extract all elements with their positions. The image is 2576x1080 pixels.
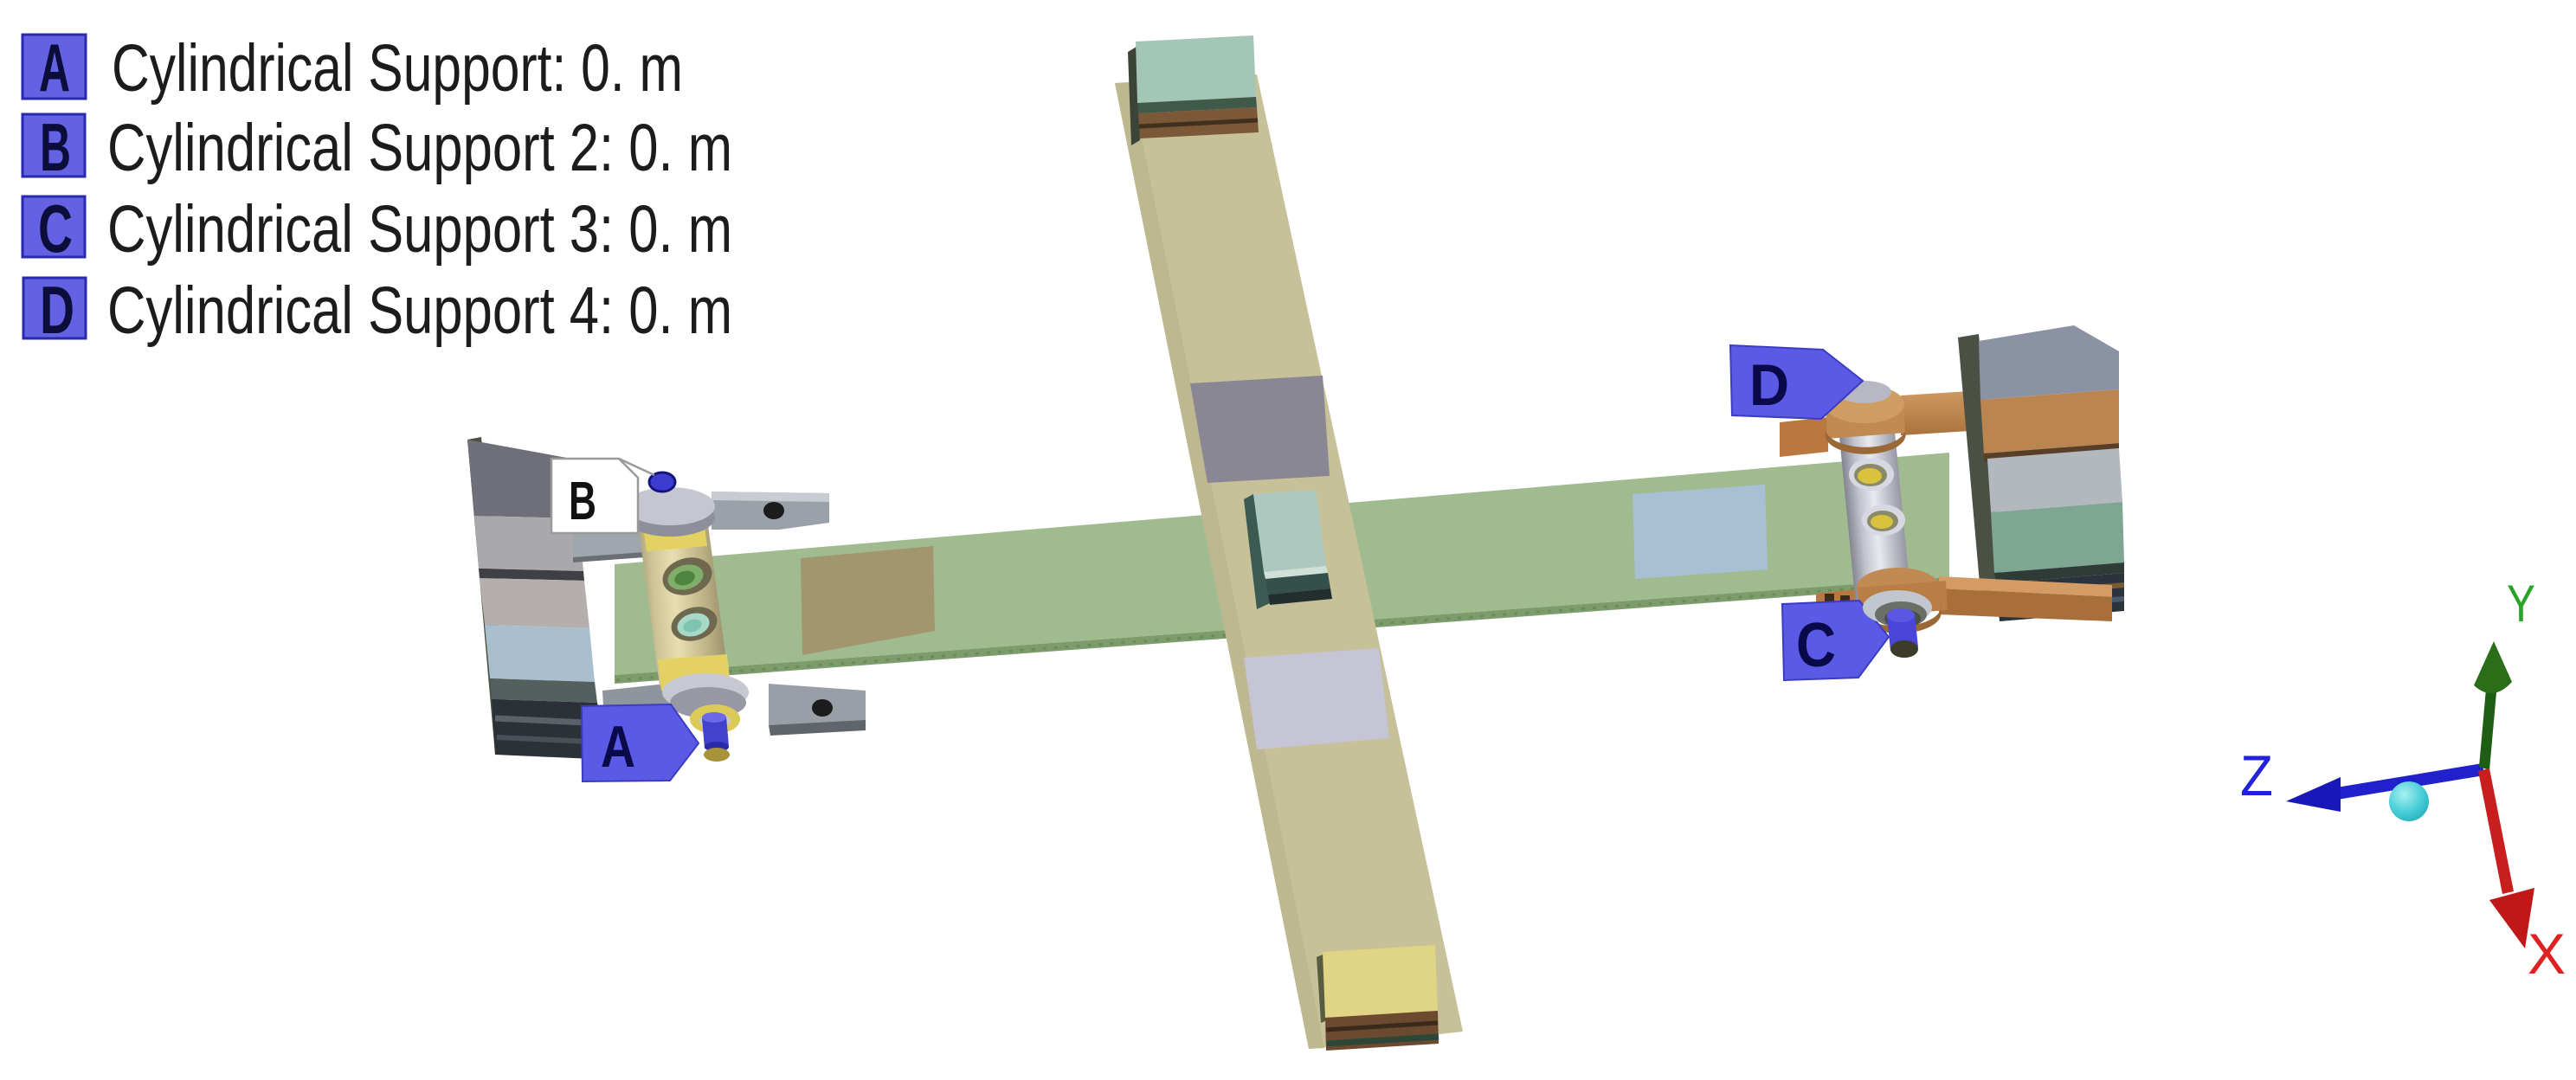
svg-text:Y: Y [2507,575,2535,633]
svg-text:B: B [40,109,71,185]
svg-text:Cylindrical Support 2: 0. m: Cylindrical Support 2: 0. m [107,111,732,185]
svg-text:D: D [1749,352,1789,418]
svg-text:C: C [1796,611,1836,680]
svg-text:Cylindrical Support 3: 0. m: Cylindrical Support 3: 0. m [107,192,732,267]
svg-text:Cylindrical Support 4: 0. m: Cylindrical Support 4: 0. m [107,273,732,348]
svg-text:A: A [39,29,70,106]
svg-text:Z: Z [2240,743,2273,807]
svg-text:C: C [38,190,73,267]
svg-text:D: D [40,272,74,348]
svg-text:Cylindrical Support: 0. m: Cylindrical Support: 0. m [112,31,683,106]
svg-text:B: B [569,472,596,531]
svg-text:X: X [2528,922,2566,986]
svg-text:A: A [601,714,635,780]
